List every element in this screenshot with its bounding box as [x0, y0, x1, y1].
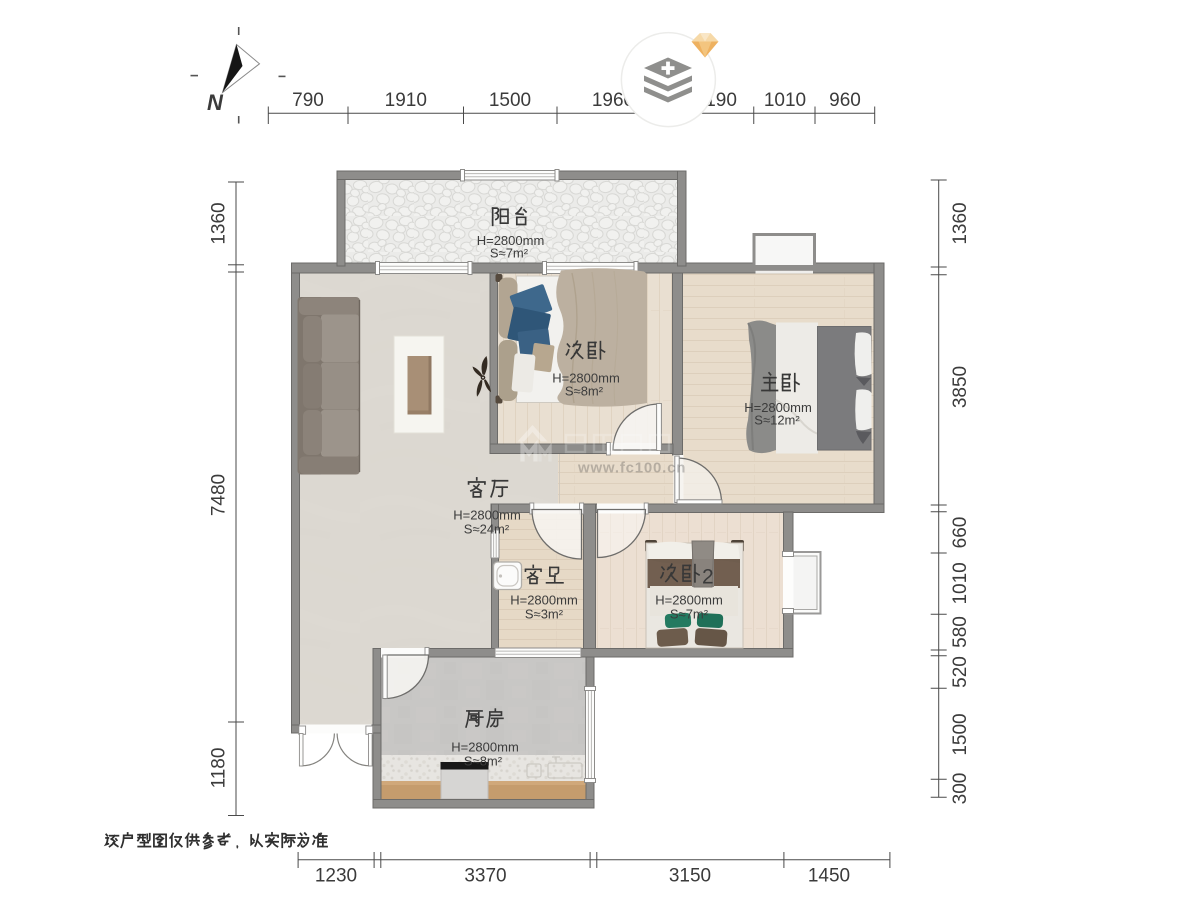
svg-text:1500: 1500	[489, 90, 531, 111]
svg-text:660: 660	[950, 517, 971, 549]
svg-text:S≈8m²: S≈8m²	[565, 384, 604, 399]
svg-text:1010: 1010	[764, 90, 806, 111]
svg-text:S≈24m²: S≈24m²	[464, 522, 510, 537]
svg-text:1360: 1360	[209, 202, 230, 244]
svg-text:S≈3m²: S≈3m²	[525, 607, 564, 622]
svg-text:790: 790	[292, 90, 324, 111]
svg-text:1180: 1180	[209, 748, 230, 789]
svg-text:S≈8m²: S≈8m²	[464, 754, 503, 769]
svg-text:H=2800mm: H=2800mm	[453, 508, 521, 523]
svg-text:520: 520	[950, 656, 971, 688]
svg-text:N: N	[207, 90, 224, 115]
svg-text:H=2800mm: H=2800mm	[451, 740, 519, 755]
svg-text:960: 960	[829, 90, 861, 111]
svg-text:7480: 7480	[209, 474, 230, 516]
svg-text:3370: 3370	[464, 866, 506, 887]
svg-text:3850: 3850	[950, 366, 971, 408]
svg-text:H=2800mm: H=2800mm	[510, 593, 578, 608]
svg-text:S≈7m²: S≈7m²	[490, 246, 529, 261]
svg-text:3150: 3150	[669, 866, 711, 887]
svg-text:580: 580	[950, 616, 971, 648]
svg-text:300: 300	[950, 773, 971, 805]
svg-text:1910: 1910	[385, 90, 427, 111]
svg-text:1360: 1360	[950, 202, 971, 244]
svg-text:1500: 1500	[950, 713, 971, 755]
svg-text:S≈12m²: S≈12m²	[754, 413, 800, 428]
svg-text:1450: 1450	[808, 866, 850, 887]
svg-text:H=2800mm: H=2800mm	[655, 593, 723, 608]
svg-text:S≈7m²: S≈7m²	[670, 607, 709, 622]
svg-text:www.fc100.cn: www.fc100.cn	[577, 460, 686, 477]
svg-text:1010: 1010	[950, 562, 971, 604]
svg-text:1230: 1230	[315, 866, 357, 887]
svg-text:2: 2	[702, 566, 714, 589]
